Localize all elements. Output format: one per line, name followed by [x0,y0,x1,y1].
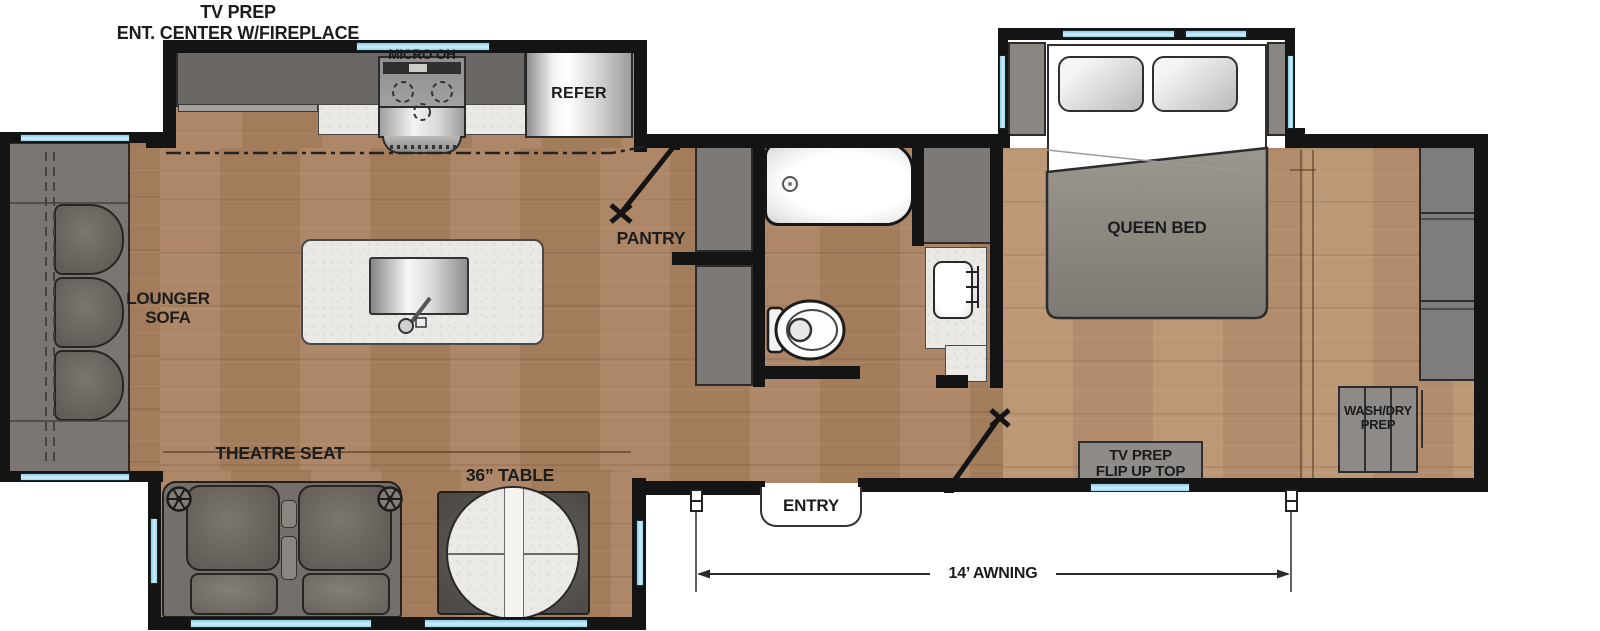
wall-top-mid [640,134,1010,148]
wall-leftslide-left [0,132,10,482]
pantry-cabinet-upper [695,145,753,252]
theatre-seat1-cushion [190,573,278,615]
window-botslide-right [636,520,644,586]
awning-bracket-left-line [692,500,701,502]
label-wash-dry-line2: PREP [1336,418,1420,432]
label-theatre-seat: THEATRE SEAT [205,444,355,463]
wall-right [1474,134,1488,492]
washdry-door-line [1421,390,1423,448]
window-sofa-slide-bottom [20,473,130,481]
closet-divider-2 [1421,300,1474,302]
sofa-cushion-1 [54,204,124,275]
closet-divider-1 [1421,212,1474,214]
entry-label: ENTRY [783,497,839,516]
pantry-cabinet-lower [695,265,753,386]
bed-pillow-left [1058,56,1144,112]
label-ent-center: TV PREP ENT. CENTER W/FIREPLACE [58,2,418,43]
label-queen-bed: QUEEN BED [1082,219,1232,238]
entertainment-center [176,51,526,107]
closet-divider-1b [1421,218,1474,220]
theatre-console2 [281,536,297,580]
closet-divider-2b [1421,308,1474,310]
window-bedslide-side-left [999,55,1006,129]
label-lounger-line1: LOUNGER [110,290,226,309]
theatre-seat2-back [298,485,392,571]
label-lounger-line2: SOFA [110,309,226,328]
label-micro-oh: MICRO OH [378,48,466,63]
floorplan-canvas: REFER TV PREP FLIP UP TOP [0,0,1600,631]
sofa-cushion-3 [54,350,124,421]
theatre-console [281,500,297,528]
bed-pillow-right [1152,56,1238,112]
wall-bath-bottom-stub [936,375,968,388]
label-wash-dry-line1: WASH/DRY [1336,404,1420,418]
label-ent-center-line2: ENT. CENTER W/FIREPLACE [58,23,418,44]
refer-label: REFER [551,85,607,103]
wall-bath-bottom [753,366,860,379]
bath-cabinet [918,142,992,244]
nightstand-left [1008,42,1046,136]
tv-prep-label-line1: TV PREP [1109,448,1172,465]
label-lounger-sofa: LOUNGER SOFA [110,290,226,327]
stove-vent-cap [382,136,462,154]
island-sink [369,257,469,315]
label-awning: 14’ AWNING [933,565,1053,583]
awning-bracket-right [1285,489,1298,512]
dinette-table [446,486,580,620]
bathtub [764,142,914,226]
table-leaf-strip [504,488,524,620]
awning-bracket-left [690,489,703,512]
table-seam-right [524,553,580,555]
window-botslide-bottom-2 [424,619,588,628]
label-ent-center-line1: TV PREP [58,2,418,23]
wall-bath-bedroom [990,140,1003,388]
refrigerator: REFER [525,50,633,138]
window-bedslide-side-right [1287,55,1294,129]
theatre-seat1-back [186,485,280,571]
window-botslide-bottom-1 [190,619,372,628]
table-seam-left [448,553,504,555]
theatre-seat2-cushion [302,573,390,615]
wall-bath-left [753,140,765,387]
label-pantry: PANTRY [601,229,701,248]
vanity-sink [933,261,973,319]
wardrobe-closet [1419,144,1476,381]
window-bedslide-top-right [1185,30,1247,38]
wall-top-right [1293,134,1488,148]
stove-band [378,106,466,138]
wall-topslide-left [163,40,176,148]
wall-tub-right [912,140,924,246]
microwave-knob [409,64,427,72]
label-wash-dry: WASH/DRY PREP [1336,404,1420,433]
awning-bracket-right-line [1287,500,1296,502]
window-tv-prep [1090,483,1190,492]
wall-pantry-stub [672,252,753,265]
entertainment-center-edge [178,104,318,112]
window-sofa-slide-top [20,134,130,142]
entry-step: ENTRY [760,487,862,527]
nightstand-right [1267,42,1287,136]
window-bedslide-top-left [1062,30,1175,38]
window-botslide-left [150,518,158,584]
label-table: 36” TABLE [445,466,575,485]
